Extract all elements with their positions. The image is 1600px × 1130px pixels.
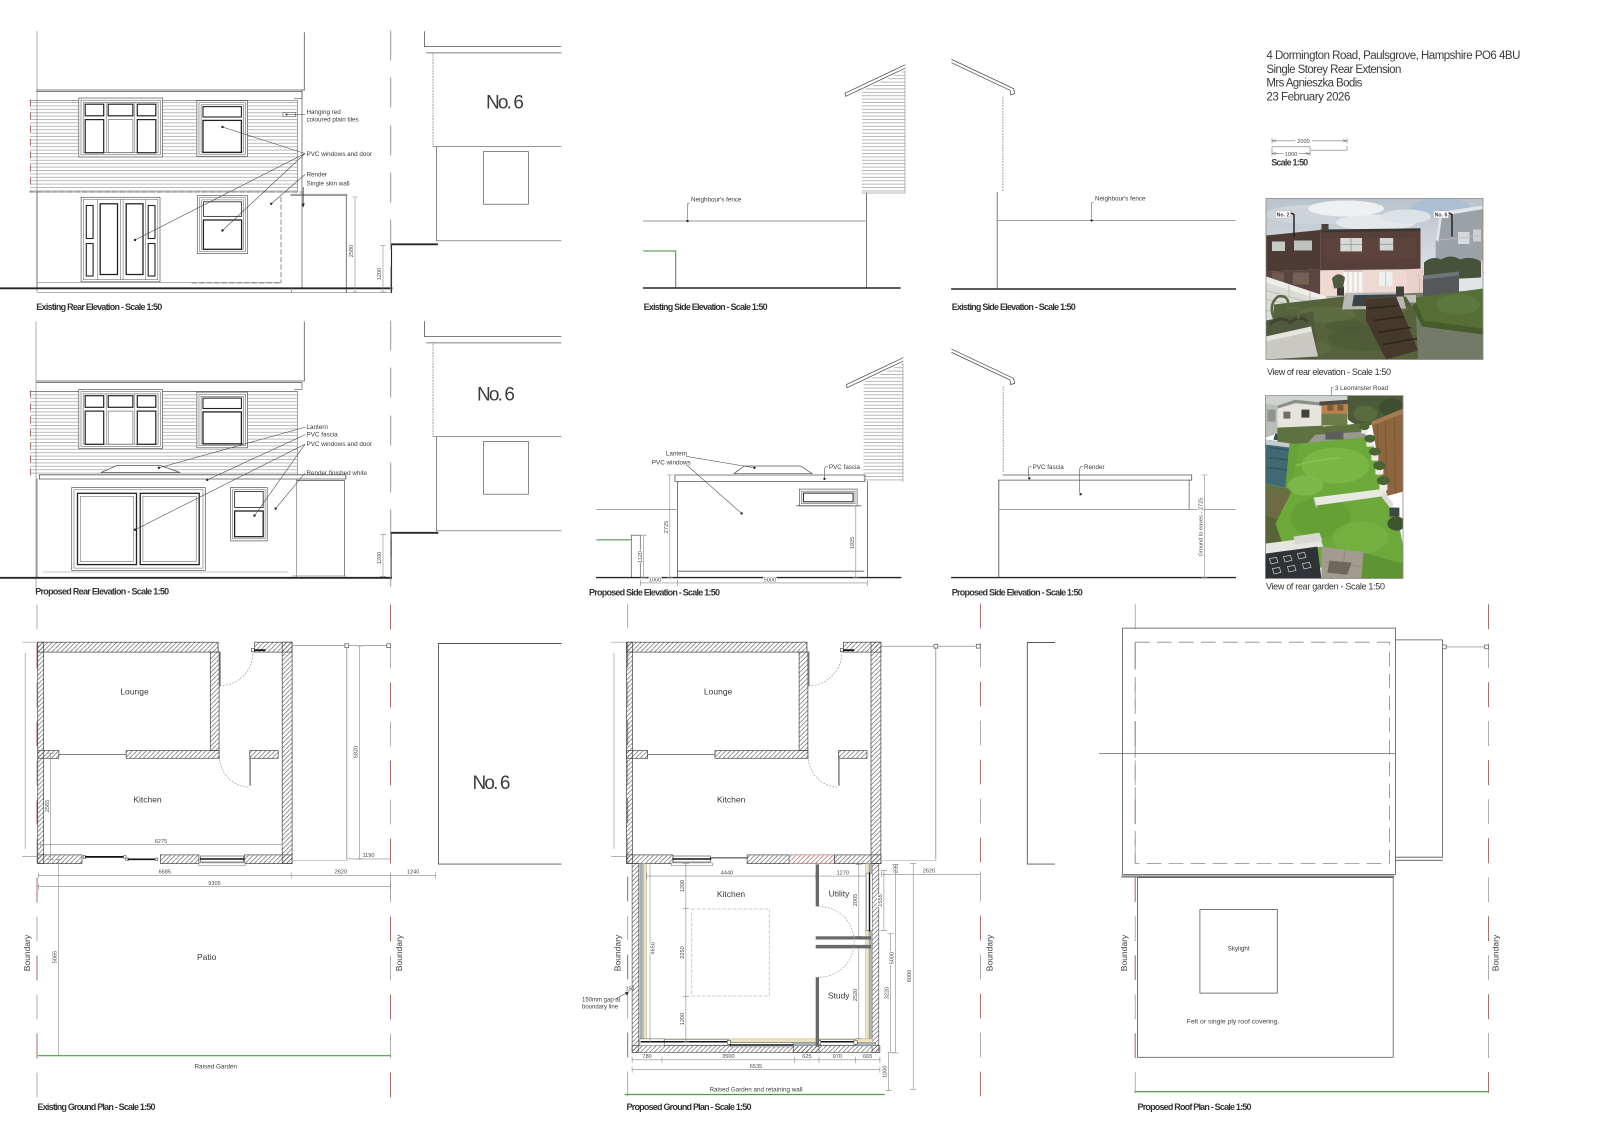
svg-text:Kitchen: Kitchen: [133, 795, 162, 805]
svg-text:Hanging red: Hanging red: [307, 109, 342, 116]
svg-text:4440: 4440: [721, 870, 733, 876]
svg-text:Existing Side Elevation - Scal: Existing Side Elevation - Scale 1:50: [644, 302, 768, 312]
svg-text:2250: 2250: [680, 946, 686, 958]
svg-text:Study: Study: [828, 990, 850, 1000]
svg-text:No. 6: No. 6: [477, 385, 515, 406]
svg-text:1190: 1190: [362, 853, 374, 859]
svg-text:Lantern: Lantern: [666, 450, 688, 457]
svg-text:625: 625: [802, 1054, 811, 1060]
svg-text:Proposed Side Elevation - Scal: Proposed Side Elevation - Scale 1:50: [952, 588, 1083, 598]
svg-text:coloured plain tiles: coloured plain tiles: [307, 117, 359, 124]
svg-text:Lounge: Lounge: [120, 687, 149, 697]
svg-text:Raised Garden and retaining wa: Raised Garden and retaining wall: [709, 1086, 802, 1093]
svg-text:No. 6: No. 6: [473, 773, 511, 794]
svg-text:No. 6: No. 6: [1435, 213, 1448, 219]
svg-text:150mm gap at: 150mm gap at: [582, 998, 621, 1004]
svg-text:Proposed Rear Elevation - Scal: Proposed Rear Elevation - Scale 1:50: [35, 587, 169, 597]
svg-text:Kitchen: Kitchen: [717, 889, 746, 899]
svg-text:Existing Rear Elevation - Scal: Existing Rear Elevation - Scale 1:50: [36, 302, 162, 312]
svg-text:Single skin wall: Single skin wall: [307, 181, 350, 188]
svg-text:Proposed Roof Plan - Scale 1:5: Proposed Roof Plan - Scale 1:50: [1138, 1102, 1252, 1112]
svg-text:Raised Garden: Raised Garden: [195, 1064, 238, 1071]
svg-text:Boundary: Boundary: [1119, 934, 1129, 971]
svg-text:PVC fascia: PVC fascia: [829, 464, 861, 471]
svg-text:Single Storey Rear Extension: Single Storey Rear Extension: [1266, 64, 1401, 76]
svg-text:23 February 2026: 23 February 2026: [1266, 91, 1350, 103]
svg-text:Kitchen: Kitchen: [717, 795, 746, 805]
svg-text:1000: 1000: [882, 1065, 888, 1077]
svg-text:Proposed Ground Plan - Scale 1: Proposed Ground Plan - Scale 1:50: [627, 1102, 752, 1112]
svg-text:View of rear elevation - Scale: View of rear elevation - Scale 1:50: [1267, 367, 1391, 377]
svg-text:5820: 5820: [354, 746, 360, 758]
svg-text:6685: 6685: [159, 870, 171, 876]
svg-text:5065: 5065: [53, 951, 59, 963]
svg-text:Boundary: Boundary: [22, 934, 32, 971]
svg-text:2000: 2000: [1297, 139, 1309, 145]
svg-text:No. 6: No. 6: [486, 93, 524, 114]
svg-text:PVC fascia: PVC fascia: [1033, 464, 1065, 471]
svg-text:2620: 2620: [335, 870, 347, 876]
svg-text:Mrs Agnieszka Bodis: Mrs Agnieszka Bodis: [1266, 78, 1362, 90]
svg-text:Neighbour's fence: Neighbour's fence: [1095, 196, 1146, 203]
svg-text:Scale 1:50: Scale 1:50: [1271, 158, 1308, 168]
svg-text:Skylight: Skylight: [1228, 946, 1250, 953]
svg-text:Lounge: Lounge: [704, 687, 733, 697]
svg-text:PVC fascia: PVC fascia: [307, 432, 339, 439]
svg-text:1200: 1200: [680, 880, 686, 892]
svg-text:9305: 9305: [208, 881, 220, 887]
svg-text:3500: 3500: [722, 1054, 734, 1060]
svg-text:1200: 1200: [377, 552, 383, 564]
svg-text:Boundary: Boundary: [613, 934, 623, 971]
svg-text:3220: 3220: [885, 987, 891, 999]
svg-text:1270: 1270: [837, 870, 849, 876]
svg-text:PVC windows and door: PVC windows and door: [307, 441, 372, 448]
svg-text:5000: 5000: [764, 577, 776, 583]
svg-text:235: 235: [894, 864, 900, 873]
svg-text:1925: 1925: [850, 537, 856, 549]
svg-text:6535: 6535: [750, 1064, 762, 1070]
svg-text:Render: Render: [1084, 464, 1105, 471]
svg-text:Neighbour's fence: Neighbour's fence: [691, 197, 742, 204]
svg-text:2565: 2565: [45, 800, 51, 812]
svg-text:4650: 4650: [651, 942, 657, 954]
svg-text:2620: 2620: [923, 869, 935, 875]
svg-text:Lantern: Lantern: [307, 424, 329, 431]
svg-text:View of rear garden - Scale 1:: View of rear garden - Scale 1:50: [1266, 582, 1385, 592]
svg-text:1555: 1555: [878, 894, 884, 906]
svg-text:1000: 1000: [649, 577, 661, 583]
svg-text:Render: Render: [307, 172, 328, 179]
svg-text:Boundary: Boundary: [984, 934, 994, 971]
svg-text:boundary line: boundary line: [582, 1005, 619, 1011]
svg-text:Existing Ground Plan - Scale 1: Existing Ground Plan - Scale 1:50: [38, 1102, 156, 1112]
svg-text:3 Leominster Road: 3 Leominster Road: [1335, 385, 1389, 392]
svg-text:Boundary: Boundary: [1490, 934, 1500, 971]
svg-text:No. 2: No. 2: [1277, 213, 1290, 219]
svg-text:Proposed Side Elevation - Scal: Proposed Side Elevation - Scale 1:50: [589, 588, 720, 598]
svg-text:2725: 2725: [664, 521, 670, 533]
svg-text:Boundary: Boundary: [394, 934, 404, 971]
svg-text:1120: 1120: [638, 551, 644, 563]
svg-text:Existing Side Elevation - Scal: Existing Side Elevation - Scale 1:50: [952, 302, 1076, 312]
svg-text:Ground to eaves - 2725: Ground to eaves - 2725: [1199, 498, 1205, 557]
svg-text:970: 970: [833, 1054, 842, 1060]
svg-text:6000: 6000: [907, 970, 913, 982]
svg-text:6275: 6275: [155, 839, 167, 845]
svg-text:150: 150: [626, 987, 635, 993]
svg-text:2580: 2580: [349, 245, 355, 257]
svg-text:Utility: Utility: [829, 889, 851, 899]
svg-text:5000: 5000: [889, 952, 895, 964]
svg-text:Render finished white: Render finished white: [307, 470, 368, 477]
svg-text:1200: 1200: [377, 268, 383, 280]
svg-text:Patio: Patio: [197, 952, 217, 962]
svg-text:Felt or single ply roof coveri: Felt or single ply roof covering.: [1187, 1018, 1280, 1025]
svg-text:1200: 1200: [680, 1013, 686, 1025]
svg-text:1240: 1240: [407, 870, 419, 876]
svg-text:4 Dormington Road, Paulsgrove,: 4 Dormington Road, Paulsgrove, Hampshire…: [1266, 50, 1520, 62]
svg-text:2520: 2520: [853, 989, 859, 1001]
svg-text:665: 665: [863, 1054, 872, 1060]
svg-text:PVC windows: PVC windows: [652, 459, 691, 466]
svg-text:2005: 2005: [853, 894, 859, 906]
svg-text:780: 780: [642, 1054, 651, 1060]
svg-text:PVC windows and door: PVC windows and door: [307, 151, 372, 158]
